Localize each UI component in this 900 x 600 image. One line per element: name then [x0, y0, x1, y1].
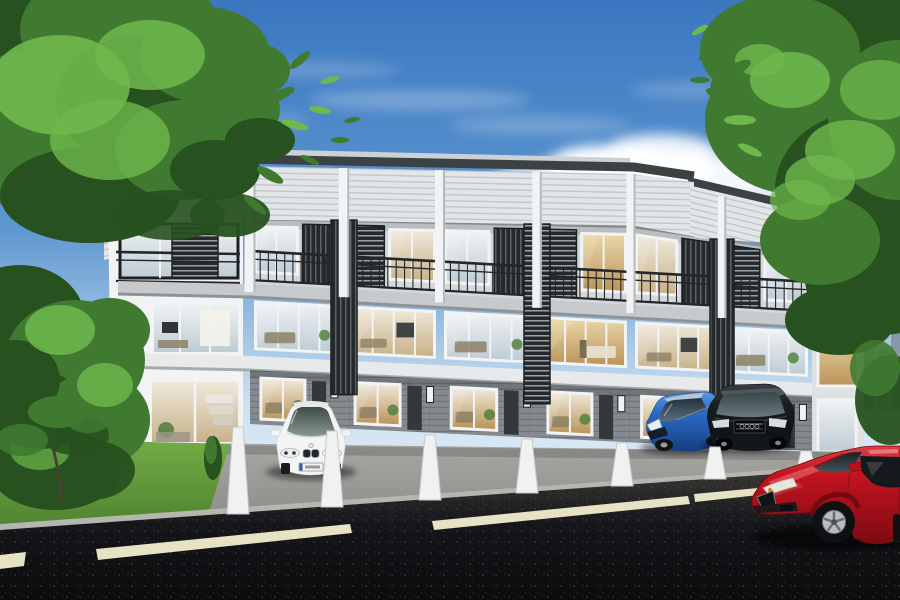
sofa [736, 355, 766, 366]
second-floor-window [254, 300, 340, 354]
leaf-sprig [331, 137, 349, 143]
indoor-plant [579, 414, 590, 425]
vent-window [799, 404, 806, 420]
tv-screen [396, 323, 414, 338]
vent-window [427, 386, 434, 402]
sofa [264, 332, 295, 343]
bright-back-window [200, 310, 230, 346]
garden-shrub [204, 436, 222, 480]
wheel [281, 463, 290, 474]
townhouse-unit [440, 224, 537, 438]
second-floor-window [444, 311, 533, 364]
architectural-rendering [0, 0, 900, 600]
kidney-grille [303, 450, 311, 458]
ground-floor-window [818, 400, 856, 452]
garden-shrub-part [205, 436, 217, 464]
indoor-plant [319, 330, 330, 341]
white-sedan-car-part [300, 464, 303, 471]
second-floor-window [348, 305, 436, 359]
foliage-cluster [95, 20, 205, 90]
leaf-sprig [724, 115, 756, 125]
clouds-part [310, 90, 530, 110]
ground-floor-window [450, 386, 499, 432]
foliage-cluster [210, 42, 290, 98]
white-sedan-car-part [284, 451, 288, 455]
ground-floor-window [546, 390, 593, 436]
townhouse-unit [537, 226, 631, 442]
ground-floor-window [148, 378, 242, 446]
foliage-cluster [115, 190, 225, 240]
stair-step [205, 395, 233, 403]
foliage-cluster [770, 180, 830, 220]
foliage-cluster [25, 305, 95, 355]
leaf-sprig [690, 77, 710, 83]
front-grille [734, 420, 765, 433]
sofa [647, 353, 672, 362]
fog-light [780, 505, 793, 511]
ground-floor-window-part [209, 406, 233, 414]
rendering-canvas [0, 0, 900, 600]
second-floor-window [635, 321, 718, 372]
townhouse-unit [250, 220, 344, 428]
second-floor-window [541, 316, 627, 368]
side-mirror [271, 430, 280, 436]
red-coupe-car-part [789, 480, 793, 484]
bush-left [0, 265, 150, 510]
tv-screen [162, 322, 178, 333]
clouds-part [450, 116, 630, 134]
car-badge [309, 443, 313, 447]
entry-door [504, 390, 519, 435]
wheel-hub [661, 443, 668, 448]
white-sedan-car-part [292, 451, 296, 455]
tv-screen [681, 338, 698, 352]
indoor-plant [387, 404, 398, 415]
ground-floor-window [354, 381, 402, 427]
headboard [580, 340, 587, 358]
foliage-cluster [850, 340, 900, 396]
third-floor-window [388, 228, 436, 283]
headlight [281, 449, 300, 458]
rear-wheel [893, 514, 900, 542]
foliage-cluster [77, 363, 133, 407]
foliage-cluster [50, 100, 170, 180]
wheel-hub [775, 441, 781, 445]
sofa [360, 339, 386, 348]
entry-door [599, 395, 613, 440]
townhouse-unit [344, 222, 440, 433]
windshield [716, 392, 785, 417]
vent-window [618, 396, 625, 412]
lawn-tree-part [66, 407, 110, 433]
ground-floor-window-part [156, 432, 190, 442]
second-floor-window-part [158, 340, 188, 348]
sofa [455, 341, 487, 352]
entry-door [407, 386, 421, 431]
third-floor-window [580, 232, 627, 294]
ground-floor-window-part [213, 417, 233, 425]
second-floor-window [150, 300, 242, 356]
white-sedan-car-part [305, 466, 320, 469]
kidney-grille [312, 450, 320, 458]
red-coupe-car-part [831, 519, 837, 525]
indoor-plant [484, 409, 495, 420]
wheel-hub [721, 442, 727, 446]
red-coupe-car-part [780, 483, 784, 487]
indoor-plant [788, 352, 799, 363]
side-mirror [342, 430, 351, 436]
indoor-plant [511, 339, 522, 350]
